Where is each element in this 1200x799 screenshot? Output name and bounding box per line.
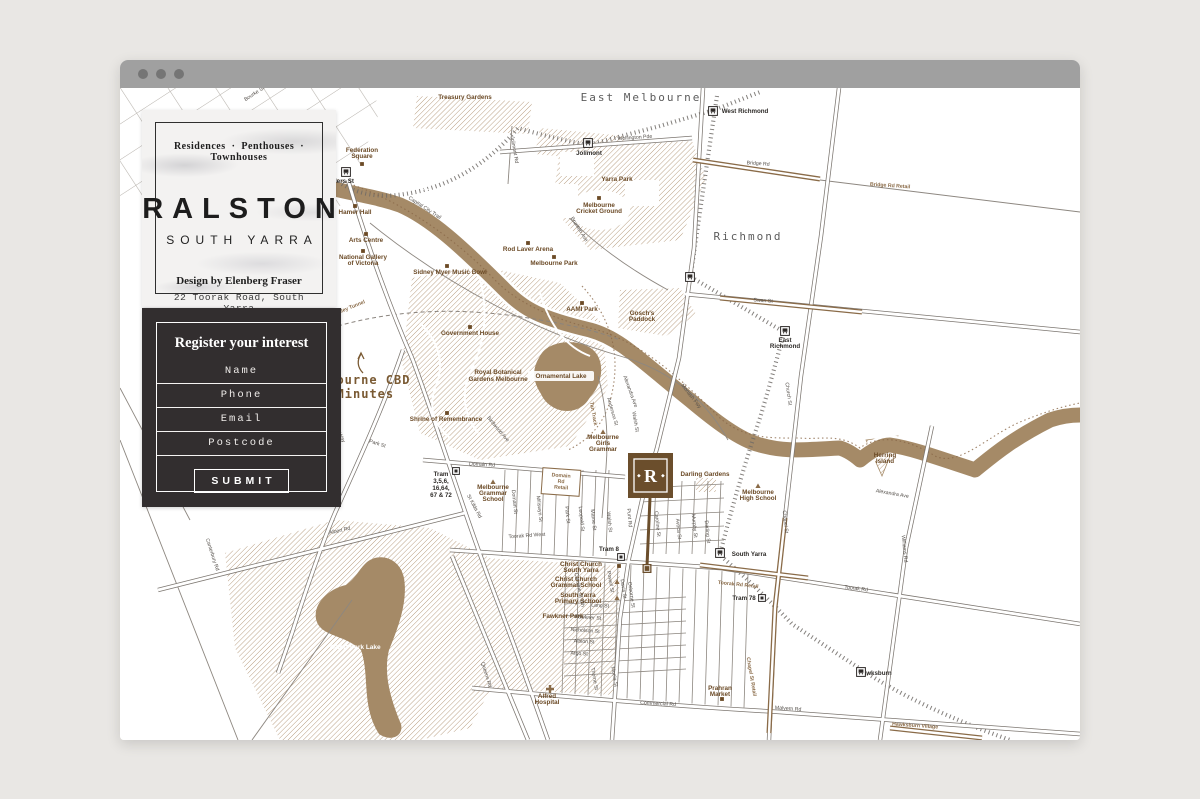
map-label: Gardens Melbourne (468, 376, 528, 383)
poi-square-icon (445, 411, 449, 415)
postcode-field-row (157, 432, 326, 456)
poi-square-icon (552, 255, 556, 259)
map-label: Tram 78 (732, 595, 756, 602)
map-label: Cricket Ground (576, 208, 622, 215)
map-label: Rod Laver Arena (503, 246, 554, 253)
map-label: Jolimont (576, 150, 602, 157)
submit-button[interactable]: SUBMIT (194, 469, 288, 493)
map-label: Avoca St (674, 518, 682, 540)
school-triangle-icon (600, 429, 605, 434)
map-label: 67 & 72 (430, 492, 452, 499)
map-label: Domain Rd (469, 461, 495, 468)
school-triangle-icon (490, 479, 495, 484)
email-field[interactable] (157, 408, 326, 431)
map-label: Tram 8 (599, 546, 620, 553)
map-label: Domain St (510, 490, 519, 515)
ralston-marker-letter: R (644, 466, 658, 486)
map-label: 16,64, (432, 485, 449, 492)
train-station-icon (716, 549, 725, 558)
brand-card-frame: Residences · Penthouses · Townhouses RAL… (155, 122, 323, 294)
window-control-close-icon[interactable] (138, 69, 148, 79)
map-label: 3,5,6, (433, 478, 449, 485)
map-label: Market (710, 691, 731, 698)
map-label: Chapel St Retail (745, 657, 758, 697)
brand-designer: Design by Elenberg Fraser (176, 275, 302, 287)
map-label: Hospital (535, 699, 560, 706)
map-label: Ornamental Lake (535, 373, 587, 380)
submit-area: SUBMIT (157, 469, 326, 493)
map-label: Treasury Gardens (438, 94, 492, 101)
map-label: Walsh St (630, 411, 640, 433)
map-label: Park St (368, 439, 387, 450)
map-label: Darling St (703, 520, 711, 544)
map-label: Punt Rd (625, 508, 633, 527)
phone-field-row (157, 384, 326, 408)
map-label: Government House (441, 330, 500, 337)
map-label: AAMI Park (566, 306, 598, 313)
poi-square-icon (580, 301, 584, 305)
map-label: Murphy St (690, 514, 698, 539)
map-label: Alexandra Ave (875, 488, 909, 500)
map-label: Commercial Rd (640, 700, 676, 708)
page-background: East MelbourneRichmondMelbourne CBD10 Mi… (0, 0, 1200, 799)
postcode-field[interactable] (157, 432, 326, 455)
tram-stop-icon (618, 554, 625, 561)
phone-field[interactable] (157, 384, 326, 407)
train-station-icon (781, 327, 790, 336)
poi-square-icon (353, 204, 357, 208)
school-triangle-icon (755, 483, 760, 488)
map-label: Arts Centre (349, 237, 384, 244)
name-field[interactable] (157, 360, 326, 383)
map-label: Leopold St (577, 506, 586, 532)
train-station-icon (857, 668, 866, 677)
map-label: Shrine of Remembrance (410, 416, 483, 423)
poi-square-icon (468, 325, 472, 329)
map-label: Park St (563, 506, 571, 524)
map-label: Toorak Rd Retail (717, 580, 759, 590)
ralston-map-marker[interactable]: R (628, 453, 673, 573)
brand-tagline: Residences · Penthouses · Townhouses (156, 141, 322, 163)
map-label: Toorak Rd (844, 585, 868, 594)
map-label: School (483, 496, 504, 503)
register-form-panel: Register your interest SUBMIT (142, 308, 341, 507)
map-label: of Victoria (348, 260, 379, 267)
window-control-minimize-icon[interactable] (156, 69, 166, 79)
map-label: High School (740, 495, 777, 502)
browser-chrome (120, 60, 1080, 88)
poi-square-icon (360, 162, 364, 166)
poi-square-icon (617, 564, 621, 568)
poi-square-icon (720, 697, 724, 701)
map-label: Anderson St (605, 397, 619, 427)
register-form: Register your interest SUBMIT (156, 322, 327, 492)
map-label: Royal Botanical (474, 369, 521, 376)
brand-card: Residences · Penthouses · Townhouses RAL… (142, 110, 336, 307)
map-label: Church St (783, 382, 792, 406)
map-label: Island (876, 458, 894, 465)
map-label: Darling Gardens (681, 471, 730, 478)
window-control-maximize-icon[interactable] (174, 69, 184, 79)
poi-square-icon (526, 241, 530, 245)
map-label: Retail (554, 485, 569, 492)
poi-square-icon (364, 232, 368, 236)
map-label: Yarra Park (601, 176, 633, 183)
map-label: Albion St (574, 638, 596, 645)
email-field-row (157, 408, 326, 432)
map-label: Richmond (714, 230, 783, 243)
map-label: Tram (434, 471, 449, 478)
form-heading: Register your interest (157, 323, 326, 360)
map-label: Lang St (591, 602, 610, 609)
name-field-row (157, 360, 326, 384)
tram-stop-icon (453, 468, 460, 475)
browser-window: East MelbourneRichmondMelbourne CBD10 Mi… (120, 60, 1080, 740)
poi-square-icon (361, 249, 365, 253)
train-station-icon (342, 168, 351, 177)
map-label: Grammar (589, 446, 618, 453)
tram-stop-icon (759, 595, 766, 602)
map-label: Bridge Rd Retail (870, 182, 911, 191)
poi-square-icon (445, 264, 449, 268)
map-label: Sidney Myer Music Bowl (413, 269, 487, 276)
map-viewport: East MelbourneRichmondMelbourne CBD10 Mi… (120, 88, 1080, 740)
train-station-icon (584, 139, 593, 148)
map-label: Walsh St (605, 511, 613, 533)
map-label: Richmond (770, 343, 800, 350)
map-label: Marne St (589, 509, 597, 531)
map-label: Alexandra Ave (621, 375, 638, 409)
map-label: Canterbury Rd (204, 538, 220, 572)
map-label: Toorak Rd West (508, 532, 546, 541)
brand-subtitle: SOUTH YARRA (160, 233, 318, 247)
map-label: South Yarra (732, 551, 767, 558)
map-label: East Melbourne (581, 91, 702, 104)
map-label: Albert Park Lake (329, 644, 381, 651)
train-station-icon (709, 107, 718, 116)
train-station-icon (686, 273, 695, 282)
map-label: Paddock (629, 316, 656, 323)
map-label: Millswyn St (535, 496, 544, 523)
map-label: Argo St (570, 651, 588, 658)
map-label: South Yarra (563, 567, 599, 574)
poi-square-icon (597, 196, 601, 200)
map-label: Square (351, 153, 373, 160)
map-label: West Richmond (722, 108, 769, 115)
map-label: Melbourne Park (530, 260, 578, 267)
brand-title: RALSTON (133, 193, 345, 226)
